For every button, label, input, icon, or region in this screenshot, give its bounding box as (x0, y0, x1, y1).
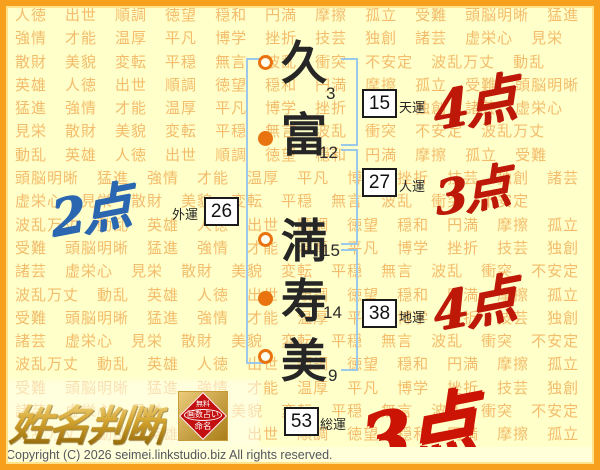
jinun-value-box: 27 (362, 168, 397, 197)
stroke-count-5: 9 (328, 366, 337, 386)
marker-circle (258, 349, 273, 364)
stroke-count-2: 12 (319, 143, 338, 163)
chiun-label: 地運 (399, 307, 425, 326)
badge-line-3: 命名 (194, 421, 211, 431)
marker-circle (258, 55, 273, 70)
gaiun-bracket (246, 58, 264, 364)
free-naming-badge[interactable]: 無料 画数占い 命名 (179, 392, 227, 440)
chiun-points: 4点 (429, 255, 516, 346)
tenun-points: 4点 (429, 54, 516, 145)
badge-line-2: 画数占い (184, 409, 222, 421)
chiun-value-box: 38 (362, 299, 397, 328)
name-char-1: 久 (272, 40, 336, 86)
souun-value-box: 53 (284, 407, 319, 436)
seimei-handan-page: 人徳出世順調徳望穏和円満摩擦孤立受難頭脳明晰猛進強情才能温厚平凡博学挫折技芸独創… (0, 0, 600, 470)
stroke-count-3: 15 (321, 241, 340, 261)
name-char-5: 美 (272, 338, 336, 384)
copyright-text: Copyright (C) 2026 seimei.linkstudio.biz… (0, 447, 600, 464)
jinun-bracket (341, 149, 358, 245)
tenun-value-box: 15 (362, 89, 397, 118)
stroke-count-4: 14 (323, 303, 342, 323)
badge-line-1: 無料 (196, 401, 210, 409)
jinun-label: 人運 (399, 176, 425, 195)
tenun-bracket (341, 58, 358, 146)
tenun-label: 天運 (399, 97, 425, 116)
jinun-points: 3点 (432, 146, 510, 229)
chiun-bracket (341, 249, 358, 371)
marker-circle (258, 291, 273, 306)
marker-circle (258, 131, 273, 146)
stroke-count-1: 3 (326, 84, 335, 104)
marker-circle (258, 232, 273, 247)
gaiun-value-box: 26 (204, 197, 239, 226)
souun-label: 総運 (320, 414, 346, 433)
seimei-handan-logo[interactable]: 姓名判断 (7, 392, 169, 453)
gaiun-label: 外運 (172, 204, 198, 223)
gaiun-points: 2点 (48, 164, 132, 251)
